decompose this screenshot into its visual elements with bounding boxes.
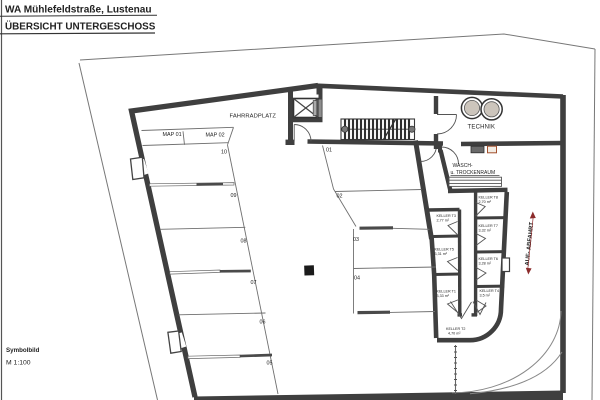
svg-text:08: 08 [241,239,247,245]
svg-text:M 1:100: M 1:100 [6,360,31,367]
svg-text:KELLER T1: KELLER T1 [437,290,456,294]
svg-text:05: 05 [267,361,273,367]
svg-text:WASCH-: WASCH- [453,163,473,169]
svg-text:4,70 m²: 4,70 m² [448,331,461,335]
svg-text:FAHRRADPLATZ: FAHRRADPLATZ [230,114,277,120]
svg-text:KELLER T5: KELLER T5 [435,248,454,252]
svg-text:07: 07 [251,280,257,286]
svg-text:WA Mühlefeldstraße, Lustenau: WA Mühlefeldstraße, Lustenau [5,5,152,16]
svg-text:02: 02 [337,193,343,199]
svg-text:KELLER T4: KELLER T4 [480,289,499,293]
svg-text:2,70 m²: 2,70 m² [479,200,492,204]
svg-text:3,28 m²: 3,28 m² [479,261,492,265]
svg-text:01: 01 [326,148,332,154]
svg-text:ÜBERSICHT UNTERGESCHOSS: ÜBERSICHT UNTERGESCHOSS [5,22,156,33]
svg-text:3,33 m²: 3,33 m² [437,294,450,298]
svg-text:09: 09 [231,193,237,199]
svg-text:MAP 01: MAP 01 [163,132,182,138]
svg-text:10: 10 [221,149,227,155]
svg-text:MAP 02: MAP 02 [206,132,225,138]
svg-text:2,77 m²: 2,77 m² [437,218,450,222]
svg-text:KELLER T3: KELLER T3 [437,214,456,218]
svg-text:3,32 m²: 3,32 m² [479,228,492,232]
svg-text:03: 03 [353,237,359,243]
svg-text:3,5 m²: 3,5 m² [480,293,491,297]
svg-text:04: 04 [354,276,360,282]
svg-text:KELLER T7: KELLER T7 [479,224,498,228]
svg-text:Symbolbild: Symbolbild [6,347,40,354]
svg-text:KELLER T2: KELLER T2 [446,327,465,331]
svg-text:KELLER T8: KELLER T8 [479,196,498,200]
svg-text:TECHNIK: TECHNIK [468,125,496,131]
svg-text:06: 06 [260,320,266,326]
svg-text:KELLER T6: KELLER T6 [479,257,498,261]
svg-text:3,31 m²: 3,31 m² [435,252,448,256]
